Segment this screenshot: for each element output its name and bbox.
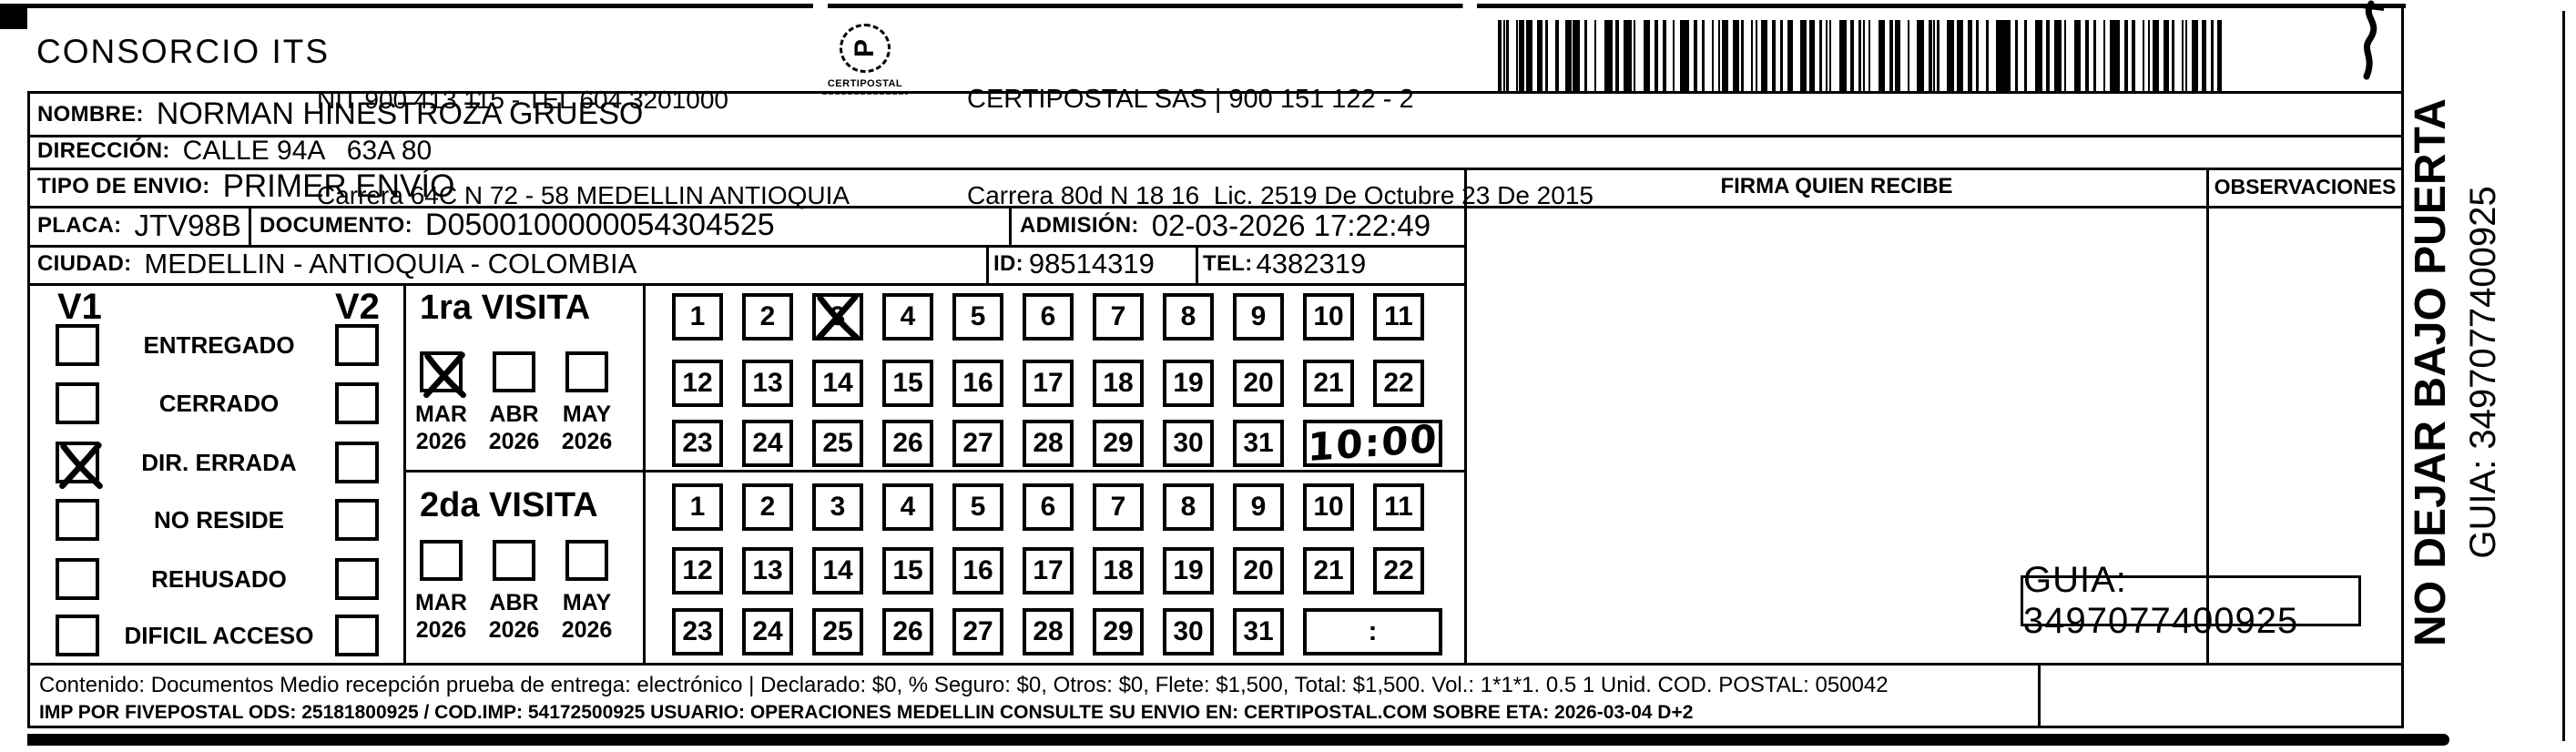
day-box-second-16[interactable]: 16 — [952, 547, 1003, 594]
month-checkbox-second-may[interactable] — [565, 540, 608, 581]
checkbox-v2-dir-errada[interactable] — [335, 442, 379, 483]
logo-p-glyph: P — [850, 39, 881, 57]
day-box-second-22[interactable]: 22 — [1373, 547, 1424, 594]
day-box-second-7[interactable]: 7 — [1093, 483, 1144, 531]
id-cell: ID: 98514319 — [993, 245, 1192, 283]
day-number: 17 — [1033, 368, 1063, 399]
scanned-delivery-form: CONSORCIO ITS NIT 900 413 115 - TEL 604 … — [0, 0, 2576, 752]
day-number: 30 — [1173, 428, 1203, 459]
checkbox-v2-rehusado[interactable] — [335, 558, 379, 600]
scan-corner-mark — [0, 5, 27, 29]
checkbox-v1-no-reside[interactable] — [56, 499, 99, 541]
day-box-first-26[interactable]: 26 — [882, 420, 933, 467]
day-number: 26 — [892, 616, 922, 647]
footer-strip: Contenido: Documentos Medio recepción pr… — [30, 666, 2038, 726]
company-name: CONSORCIO ITS — [36, 33, 330, 71]
day-number: 10 — [1313, 301, 1343, 332]
ciudad-value: MEDELLIN - ANTIOQUIA - COLOMBIA — [144, 248, 636, 280]
v2-column-label: V2 — [335, 287, 380, 328]
day-number: 6 — [1041, 301, 1056, 332]
month-checkbox-first-may[interactable] — [565, 351, 608, 392]
day-box-first-18[interactable]: 18 — [1093, 360, 1144, 407]
day-box-second-13[interactable]: 13 — [742, 547, 793, 594]
day-box-first-12[interactable]: 12 — [672, 360, 723, 407]
grid-line — [986, 245, 989, 283]
day-box-first-28[interactable]: 28 — [1023, 420, 1074, 467]
checkbox-v1-entregado[interactable] — [56, 324, 99, 366]
day-box-second-28[interactable]: 28 — [1023, 608, 1074, 655]
day-box-second-21[interactable]: 21 — [1303, 547, 1354, 594]
day-number: 30 — [1173, 616, 1203, 647]
day-number: 26 — [892, 428, 922, 459]
firma-header: FIRMA QUIEN RECIBE — [1467, 168, 2206, 206]
bottom-scan-bar — [27, 734, 2449, 746]
day-number: 21 — [1313, 555, 1343, 586]
day-box-first-7[interactable]: 7 — [1093, 293, 1144, 340]
first-visit-months: MAR2026ABR2026MAY2026 — [406, 351, 622, 455]
day-box-first-25[interactable]: 25 — [812, 420, 863, 467]
day-box-second-15[interactable]: 15 — [882, 547, 933, 594]
status-label: CERRADO — [107, 390, 331, 418]
month-label: MAY — [552, 401, 622, 428]
day-box-first-22[interactable]: 22 — [1373, 360, 1424, 407]
day-box-first-3[interactable]: 3 — [812, 293, 863, 340]
ciudad-label: CIUDAD: — [37, 251, 131, 277]
day-box-first-14[interactable]: 14 — [812, 360, 863, 407]
day-row: 1234567891011 — [672, 293, 1424, 340]
grid-line — [1009, 206, 1012, 245]
id-value: 98514319 — [1029, 248, 1155, 280]
day-box-first-9[interactable]: 9 — [1233, 293, 1284, 340]
status-row: NO RESIDE — [30, 499, 403, 543]
day-number: 11 — [1384, 492, 1413, 523]
day-box-second-9[interactable]: 9 — [1233, 483, 1284, 531]
day-box-first-5[interactable]: 5 — [952, 293, 1003, 340]
tel-cell: TEL: 4382319 — [1203, 245, 1461, 283]
month-option-first-may: MAY2026 — [552, 351, 622, 455]
day-box-first-30[interactable]: 30 — [1163, 420, 1214, 467]
day-box-second-23[interactable]: 23 — [672, 608, 723, 655]
day-number: 6 — [1041, 492, 1056, 523]
hour-box-handwritten[interactable]: 10:00 — [1303, 420, 1442, 467]
admision-cell: ADMISIÓN: 02-03-2026 17:22:49 — [1020, 206, 1461, 245]
hour-box[interactable]: : — [1303, 608, 1442, 655]
day-box-first-19[interactable]: 19 — [1163, 360, 1214, 407]
sidebar-vertical-text: NO DEJAR BAJO PUERTA GUIA: 3497077400925 — [2406, 89, 2562, 655]
day-number: 3 — [830, 492, 846, 523]
day-box-second-26[interactable]: 26 — [882, 608, 933, 655]
tel-value: 4382319 — [1257, 248, 1367, 280]
day-row: 23242526272829303110:00 — [672, 420, 1442, 467]
first-visit-title: 1ra VISITA — [420, 289, 590, 328]
admision-value: 02-03-2026 17:22:49 — [1152, 208, 1431, 243]
day-number: 12 — [682, 368, 712, 399]
status-label: REHUSADO — [107, 565, 331, 594]
day-number: 23 — [682, 428, 712, 459]
day-number: 15 — [892, 555, 922, 586]
day-box-first-27[interactable]: 27 — [952, 420, 1003, 467]
second-visit-day-grid: 1234567891011121314151617181920212223242… — [643, 470, 1464, 663]
grid-line — [2038, 663, 2041, 726]
day-number: 7 — [1111, 301, 1126, 332]
day-box-second-3[interactable]: 3 — [812, 483, 863, 531]
ciudad-cell: CIUDAD: MEDELLIN - ANTIOQUIA - COLOMBIA — [37, 245, 983, 283]
handwritten-hour: 10:00 — [1307, 420, 1438, 467]
day-number: 4 — [901, 492, 916, 523]
guia-text: GUIA: 3497077400925 — [2023, 560, 2358, 642]
day-box-first-2[interactable]: 2 — [742, 293, 793, 340]
tipo-envio-value: PRIMER ENVÍO — [223, 168, 455, 205]
day-number: 23 — [682, 616, 712, 647]
day-box-first-17[interactable]: 17 — [1023, 360, 1074, 407]
day-box-second-11[interactable]: 11 — [1373, 483, 1424, 531]
day-number: 2 — [760, 492, 776, 523]
day-box-first-29[interactable]: 29 — [1093, 420, 1144, 467]
checkbox-v2-dificil-acceso[interactable] — [335, 615, 379, 656]
guia-box: GUIA: 3497077400925 — [2021, 575, 2361, 626]
nombre-label: NOMBRE: — [37, 102, 144, 127]
day-box-first-6[interactable]: 6 — [1023, 293, 1074, 340]
month-label: ABR — [479, 590, 549, 616]
day-box-second-24[interactable]: 24 — [742, 608, 793, 655]
day-box-second-20[interactable]: 20 — [1233, 547, 1284, 594]
right-edge-line — [2562, 11, 2565, 741]
day-number: 18 — [1103, 368, 1133, 399]
checkbox-v2-entregado[interactable] — [335, 324, 379, 366]
day-number: 29 — [1103, 428, 1133, 459]
status-row: DIR. ERRADA — [30, 442, 403, 485]
day-box-first-16[interactable]: 16 — [952, 360, 1003, 407]
day-box-first-24[interactable]: 24 — [742, 420, 793, 467]
month-option-first-abr: ABR2026 — [479, 351, 549, 455]
day-number: 25 — [822, 428, 852, 459]
day-number: 15 — [892, 368, 922, 399]
status-row: DIFICIL ACCESO — [30, 615, 403, 658]
day-number: 20 — [1243, 555, 1273, 586]
checkbox-v1-dificil-acceso[interactable] — [56, 615, 99, 656]
documento-value: D0500100000054304525 — [425, 208, 775, 243]
day-number: 7 — [1111, 492, 1126, 523]
month-option-second-may: MAY2026 — [552, 540, 622, 644]
month-year: 2026 — [552, 617, 622, 644]
day-box-first-21[interactable]: 21 — [1303, 360, 1354, 407]
logo-wordmark: CERTIPOSTAL — [820, 78, 911, 89]
day-number: 13 — [752, 555, 782, 586]
checkbox-v2-cerrado[interactable] — [335, 382, 379, 424]
day-box-second-18[interactable]: 18 — [1093, 547, 1144, 594]
day-number: 25 — [822, 616, 852, 647]
hour-colon: : — [1369, 616, 1378, 647]
observaciones-header: OBSERVACIONES — [2209, 168, 2401, 206]
grid-line — [249, 206, 251, 245]
pen-mark-icon — [2327, 0, 2409, 84]
month-option-first-mar: MAR2026 — [406, 351, 476, 455]
day-number: 16 — [962, 368, 993, 399]
checkbox-v2-no-reside[interactable] — [335, 499, 379, 541]
grid-line — [2401, 5, 2404, 93]
handwritten-x-mark — [55, 441, 107, 492]
day-box-second-1[interactable]: 1 — [672, 483, 723, 531]
id-label: ID: — [993, 251, 1023, 277]
day-number: 18 — [1103, 555, 1133, 586]
placa-cell: PLACA: JTV98B — [37, 206, 245, 245]
direccion-row: DIRECCIÓN: CALLE 94A 63A 80 — [37, 135, 2396, 168]
footer-line-2: IMP POR FIVEPOSTAL ODS: 25181800925 / CO… — [39, 702, 1693, 724]
day-number: 29 — [1103, 616, 1133, 647]
day-box-first-15[interactable]: 15 — [882, 360, 933, 407]
month-year: 2026 — [406, 429, 476, 455]
day-box-second-8[interactable]: 8 — [1163, 483, 1214, 531]
day-number: 14 — [822, 555, 852, 586]
day-box-second-10[interactable]: 10 — [1303, 483, 1354, 531]
day-box-first-20[interactable]: 20 — [1233, 360, 1284, 407]
placa-value: JTV98B — [134, 208, 240, 243]
day-number: 27 — [962, 616, 993, 647]
admision-label: ADMISIÓN: — [1020, 213, 1139, 239]
month-label: ABR — [479, 401, 549, 428]
scan-top-edge-line — [0, 4, 2406, 8]
day-box-second-31[interactable]: 31 — [1233, 608, 1284, 655]
day-number: 8 — [1181, 492, 1196, 523]
status-section: V1 V2 ENTREGADOCERRADODIR. ERRADANO RESI… — [30, 283, 403, 663]
day-box-second-30[interactable]: 30 — [1163, 608, 1214, 655]
day-box-first-1[interactable]: 1 — [672, 293, 723, 340]
day-number: 22 — [1383, 368, 1413, 399]
day-row: 232425262728293031: — [672, 608, 1442, 655]
month-option-second-mar: MAR2026 — [406, 540, 476, 644]
status-label: ENTREGADO — [107, 331, 331, 360]
direccion-value: CALLE 94A 63A 80 — [183, 136, 433, 167]
day-box-first-13[interactable]: 13 — [742, 360, 793, 407]
month-option-second-abr: ABR2026 — [479, 540, 549, 644]
v1-column-label: V1 — [57, 287, 102, 328]
first-visit-day-grid: 1234567891011121314151617181920212223242… — [643, 283, 1464, 470]
day-number: 9 — [1251, 301, 1267, 332]
direccion-label: DIRECCIÓN: — [37, 138, 170, 164]
day-number: 8 — [1181, 301, 1196, 332]
month-checkbox-first-abr[interactable] — [493, 351, 535, 392]
day-box-second-27[interactable]: 27 — [952, 608, 1003, 655]
month-checkbox-first-mar[interactable] — [420, 351, 463, 392]
month-year: 2026 — [406, 617, 476, 644]
day-number: 16 — [962, 555, 993, 586]
day-box-second-2[interactable]: 2 — [742, 483, 793, 531]
day-box-second-17[interactable]: 17 — [1023, 547, 1074, 594]
month-year: 2026 — [479, 617, 549, 644]
day-box-first-8[interactable]: 8 — [1163, 293, 1214, 340]
checkbox-v1-cerrado[interactable] — [56, 382, 99, 424]
day-box-second-14[interactable]: 14 — [812, 547, 863, 594]
day-number: 31 — [1243, 428, 1273, 459]
handwritten-x-mark — [811, 292, 864, 343]
day-number: 12 — [682, 555, 712, 586]
placa-label: PLACA: — [37, 213, 121, 239]
day-number: 1 — [690, 301, 706, 332]
status-label: DIFICIL ACCESO — [107, 622, 331, 650]
day-number: 9 — [1251, 492, 1267, 523]
checkbox-v1-dir-errada[interactable] — [56, 442, 99, 483]
day-number: 19 — [1173, 555, 1203, 586]
day-number: 24 — [752, 428, 782, 459]
sidebar-guia: GUIA: 3497077400925 — [2463, 89, 2504, 655]
month-year: 2026 — [552, 429, 622, 455]
month-label: MAR — [406, 590, 476, 616]
second-visit-cell: 2da VISITA MAR2026ABR2026MAY2026 — [403, 470, 643, 663]
documento-cell: DOCUMENTO: D0500100000054304525 — [260, 206, 1006, 245]
tipo-envio-label: TIPO DE ENVIO: — [37, 174, 210, 199]
day-number: 17 — [1033, 555, 1063, 586]
day-number: 4 — [901, 301, 916, 332]
day-number: 22 — [1383, 555, 1413, 586]
certipostal-logo-icon: P — [840, 24, 891, 73]
day-box-second-6[interactable]: 6 — [1023, 483, 1074, 531]
day-number: 2 — [760, 301, 776, 332]
month-year: 2026 — [479, 429, 549, 455]
day-box-second-29[interactable]: 29 — [1093, 608, 1144, 655]
day-number: 24 — [752, 616, 782, 647]
day-number: 27 — [962, 428, 993, 459]
month-checkbox-second-abr[interactable] — [493, 540, 535, 581]
day-number: 13 — [752, 368, 782, 399]
second-visit-title: 2da VISITA — [420, 486, 598, 525]
day-box-first-23[interactable]: 23 — [672, 420, 723, 467]
day-number: 11 — [1384, 301, 1413, 332]
day-number: 20 — [1243, 368, 1273, 399]
day-box-first-31[interactable]: 31 — [1233, 420, 1284, 467]
day-box-second-25[interactable]: 25 — [812, 608, 863, 655]
checkbox-v1-rehusado[interactable] — [56, 558, 99, 600]
day-number: 14 — [822, 368, 852, 399]
day-row: 1213141516171819202122 — [672, 360, 1424, 407]
month-label: MAR — [406, 401, 476, 428]
day-box-first-11[interactable]: 11 — [1373, 293, 1424, 340]
day-number: 19 — [1173, 368, 1203, 399]
day-number: 10 — [1313, 492, 1343, 523]
tipo-envio-row: TIPO DE ENVIO: PRIMER ENVÍO — [37, 168, 1458, 206]
day-number: 1 — [690, 492, 706, 523]
day-box-second-19[interactable]: 19 — [1163, 547, 1214, 594]
day-number: 31 — [1243, 616, 1273, 647]
day-number: 5 — [971, 301, 986, 332]
tel-label: TEL: — [1203, 251, 1253, 277]
grid-line — [1196, 245, 1198, 283]
day-box-second-5[interactable]: 5 — [952, 483, 1003, 531]
month-label: MAY — [552, 590, 622, 616]
status-row: REHUSADO — [30, 558, 403, 602]
day-number: 5 — [971, 492, 986, 523]
status-row: CERRADO — [30, 382, 403, 426]
day-box-second-12[interactable]: 12 — [672, 547, 723, 594]
handwritten-x-mark — [419, 351, 471, 401]
no-dejar-warning: NO DEJAR BAJO PUERTA — [2406, 89, 2456, 655]
day-number: 28 — [1033, 616, 1063, 647]
status-label: DIR. ERRADA — [107, 449, 331, 477]
day-number: 28 — [1033, 428, 1063, 459]
nombre-value: NORMAN HINESTROZA GRUESO — [157, 97, 644, 132]
footer-line-1: Contenido: Documentos Medio recepción pr… — [39, 673, 1889, 698]
nombre-row: NOMBRE: NORMAN HINESTROZA GRUESO — [37, 94, 2396, 135]
day-row: 1213141516171819202122 — [672, 547, 1424, 594]
status-row: ENTREGADO — [30, 324, 403, 368]
day-row: 1234567891011 — [672, 483, 1424, 531]
day-number: 21 — [1313, 368, 1343, 399]
day-box-second-4[interactable]: 4 — [882, 483, 933, 531]
month-checkbox-second-mar[interactable] — [420, 540, 463, 581]
status-label: NO RESIDE — [107, 506, 331, 534]
day-box-first-10[interactable]: 10 — [1303, 293, 1354, 340]
documento-label: DOCUMENTO: — [260, 213, 412, 239]
day-box-first-4[interactable]: 4 — [882, 293, 933, 340]
second-visit-months: MAR2026ABR2026MAY2026 — [406, 540, 622, 644]
first-visit-cell: 1ra VISITA MAR2026ABR2026MAY2026 — [403, 283, 643, 470]
barcode — [1498, 20, 2222, 92]
